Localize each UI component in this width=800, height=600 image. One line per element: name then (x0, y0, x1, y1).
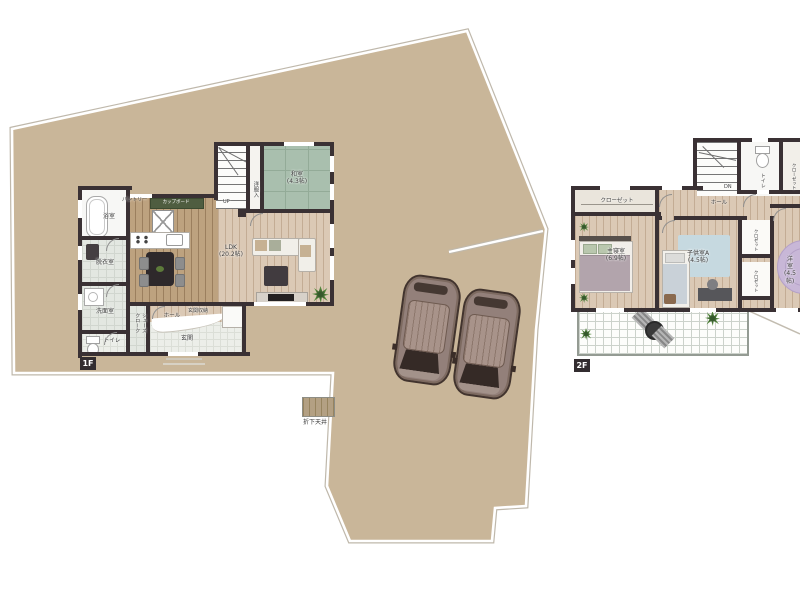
car-mirror (510, 366, 516, 373)
western-room-label: 洋室 (4.5帖) (784, 256, 796, 285)
wall-pillar (238, 209, 246, 217)
bath-label: 浴室 (103, 213, 115, 220)
wall (655, 216, 662, 220)
washing-machine (86, 244, 99, 260)
floor-plan-canvas: 浴室 脱衣室 洗面室 トイレ シューズクローク ホール 玄関収納 玄関 パントリ… (0, 0, 800, 600)
toilet-bowl-2f (756, 153, 769, 168)
kids-pillow (665, 253, 685, 263)
ldk-label: LDK (20.2帖) (219, 244, 243, 258)
sofa-cushion (255, 240, 267, 251)
window (776, 308, 798, 312)
stairs-up-label: UP (223, 199, 230, 205)
window (330, 156, 334, 172)
wall (779, 138, 783, 194)
closet-strip-label: クローゼット (600, 198, 633, 205)
window (690, 308, 716, 312)
dining-chair (139, 274, 149, 287)
window (254, 302, 306, 306)
window (600, 186, 630, 190)
car-rear-window (413, 282, 448, 296)
entrance-storage-label: 玄関収納 (188, 308, 208, 314)
wall (770, 216, 774, 312)
legend-dropped-ceiling-swatch (302, 397, 335, 417)
refrigerator-space (152, 210, 174, 234)
car-roof (402, 299, 451, 354)
car-mirror (452, 357, 458, 364)
floor-tag-1f: 1F (80, 357, 96, 370)
kids-room-a-label: 子供室A (4.5帖) (687, 250, 709, 264)
wall (214, 142, 334, 146)
roof-edge-line (749, 311, 800, 334)
wall (674, 216, 747, 220)
wall (242, 304, 246, 356)
window (330, 224, 334, 248)
study-desk (698, 288, 732, 301)
japanese-room-label: 和室 (4.3帖) (287, 171, 307, 185)
window (662, 186, 682, 190)
dining-chair (139, 257, 149, 270)
washroom-label: 洗面室 (96, 308, 114, 315)
tv (268, 294, 294, 301)
toilet-label: トイレ (104, 338, 121, 345)
wall (214, 142, 218, 200)
table-centerpiece (156, 266, 164, 272)
car-rear-window (473, 296, 508, 310)
window (284, 142, 314, 146)
stove-burners (134, 235, 150, 244)
window (330, 256, 334, 280)
pantry-label: パントリー (122, 197, 147, 203)
sofa-cushion (300, 245, 311, 257)
vanity-basin (88, 292, 98, 302)
car-mirror (392, 343, 398, 350)
window (752, 138, 768, 142)
kitchen-sink (166, 234, 183, 246)
wall (655, 212, 659, 312)
shoes-closet-label: シューズクローク (131, 312, 147, 334)
dining-chair (175, 257, 185, 270)
wall (78, 236, 128, 240)
window (78, 200, 82, 218)
kitchen-floor-dropped-ceiling (128, 198, 220, 306)
window (571, 240, 575, 260)
wall (78, 282, 128, 286)
closet-c-label: クローゼット (790, 156, 796, 196)
window (78, 294, 82, 310)
porch-step-line (163, 363, 205, 365)
hall-label-1f: ホール (164, 313, 181, 320)
wall (78, 352, 250, 356)
legend-dropped-ceiling-label: 折下天井 (303, 419, 327, 426)
wall (693, 138, 800, 142)
wall (78, 330, 128, 334)
window (330, 184, 334, 200)
stairs-2f (697, 142, 739, 196)
window (571, 268, 575, 284)
wall (80, 186, 132, 190)
dining-chair (175, 274, 185, 287)
wall (260, 142, 264, 213)
wall (737, 138, 741, 194)
master-bedroom-label: 主寝室 (6.9帖) (606, 248, 626, 262)
toy-basket (664, 294, 676, 304)
hall-label-2f: ホール (711, 200, 728, 207)
living-rug (264, 266, 288, 286)
window (596, 308, 624, 312)
toilet-label-2f: トイレ (759, 169, 766, 191)
wall (571, 212, 661, 216)
desk-chair (707, 279, 718, 290)
car-roof (462, 313, 511, 368)
entrance-label: 玄関 (181, 335, 193, 342)
floor-tag-2f: 2F (574, 359, 590, 372)
porch-step-line (166, 358, 202, 360)
entrance-door-opening (168, 352, 198, 356)
wall (742, 296, 770, 300)
stairs-dn-label: DN (724, 184, 732, 190)
wall (571, 186, 703, 190)
wall (693, 138, 697, 190)
wall (126, 302, 246, 306)
sofa-cushion (269, 240, 281, 251)
cupboard-label: カップボード (163, 200, 190, 205)
window (78, 246, 82, 260)
dressing-label: 脱衣室 (96, 259, 114, 266)
closet-b-label: クロゼット (752, 266, 758, 296)
bed-pillow (583, 244, 597, 254)
wall (246, 142, 250, 213)
closet-a-label: クロゼット (752, 225, 758, 255)
clothes-closet-label: 洋服入 (251, 175, 258, 203)
